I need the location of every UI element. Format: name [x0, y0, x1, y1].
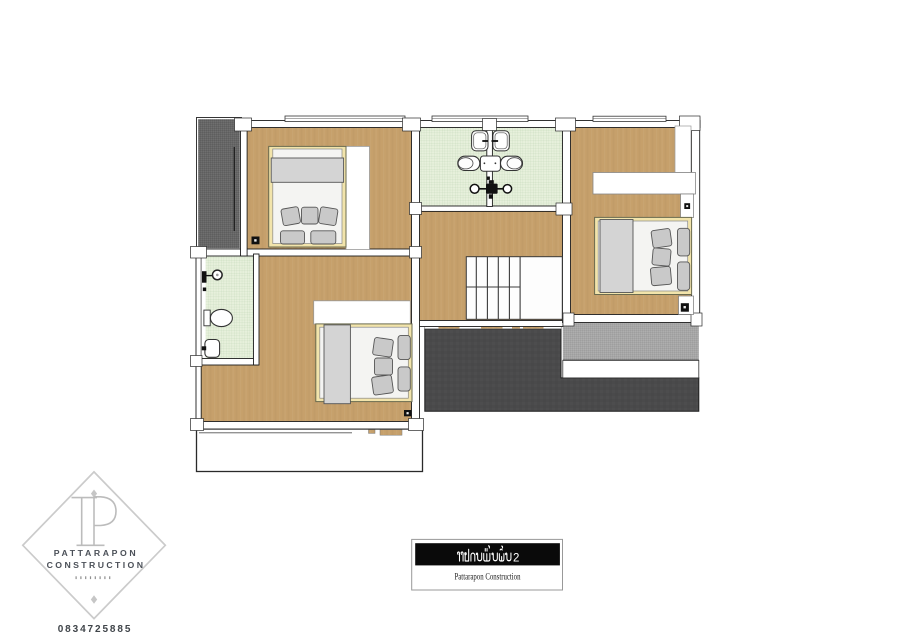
svg-text:PATTARAPON: PATTARAPON [54, 548, 138, 558]
svg-text:2: 2 [513, 552, 519, 564]
svg-text:Pattarapon Construction: Pattarapon Construction [455, 572, 521, 582]
svg-text:0834725885: 0834725885 [58, 624, 133, 635]
svg-text:CONSTRUCTION: CONSTRUCTION [47, 560, 146, 570]
